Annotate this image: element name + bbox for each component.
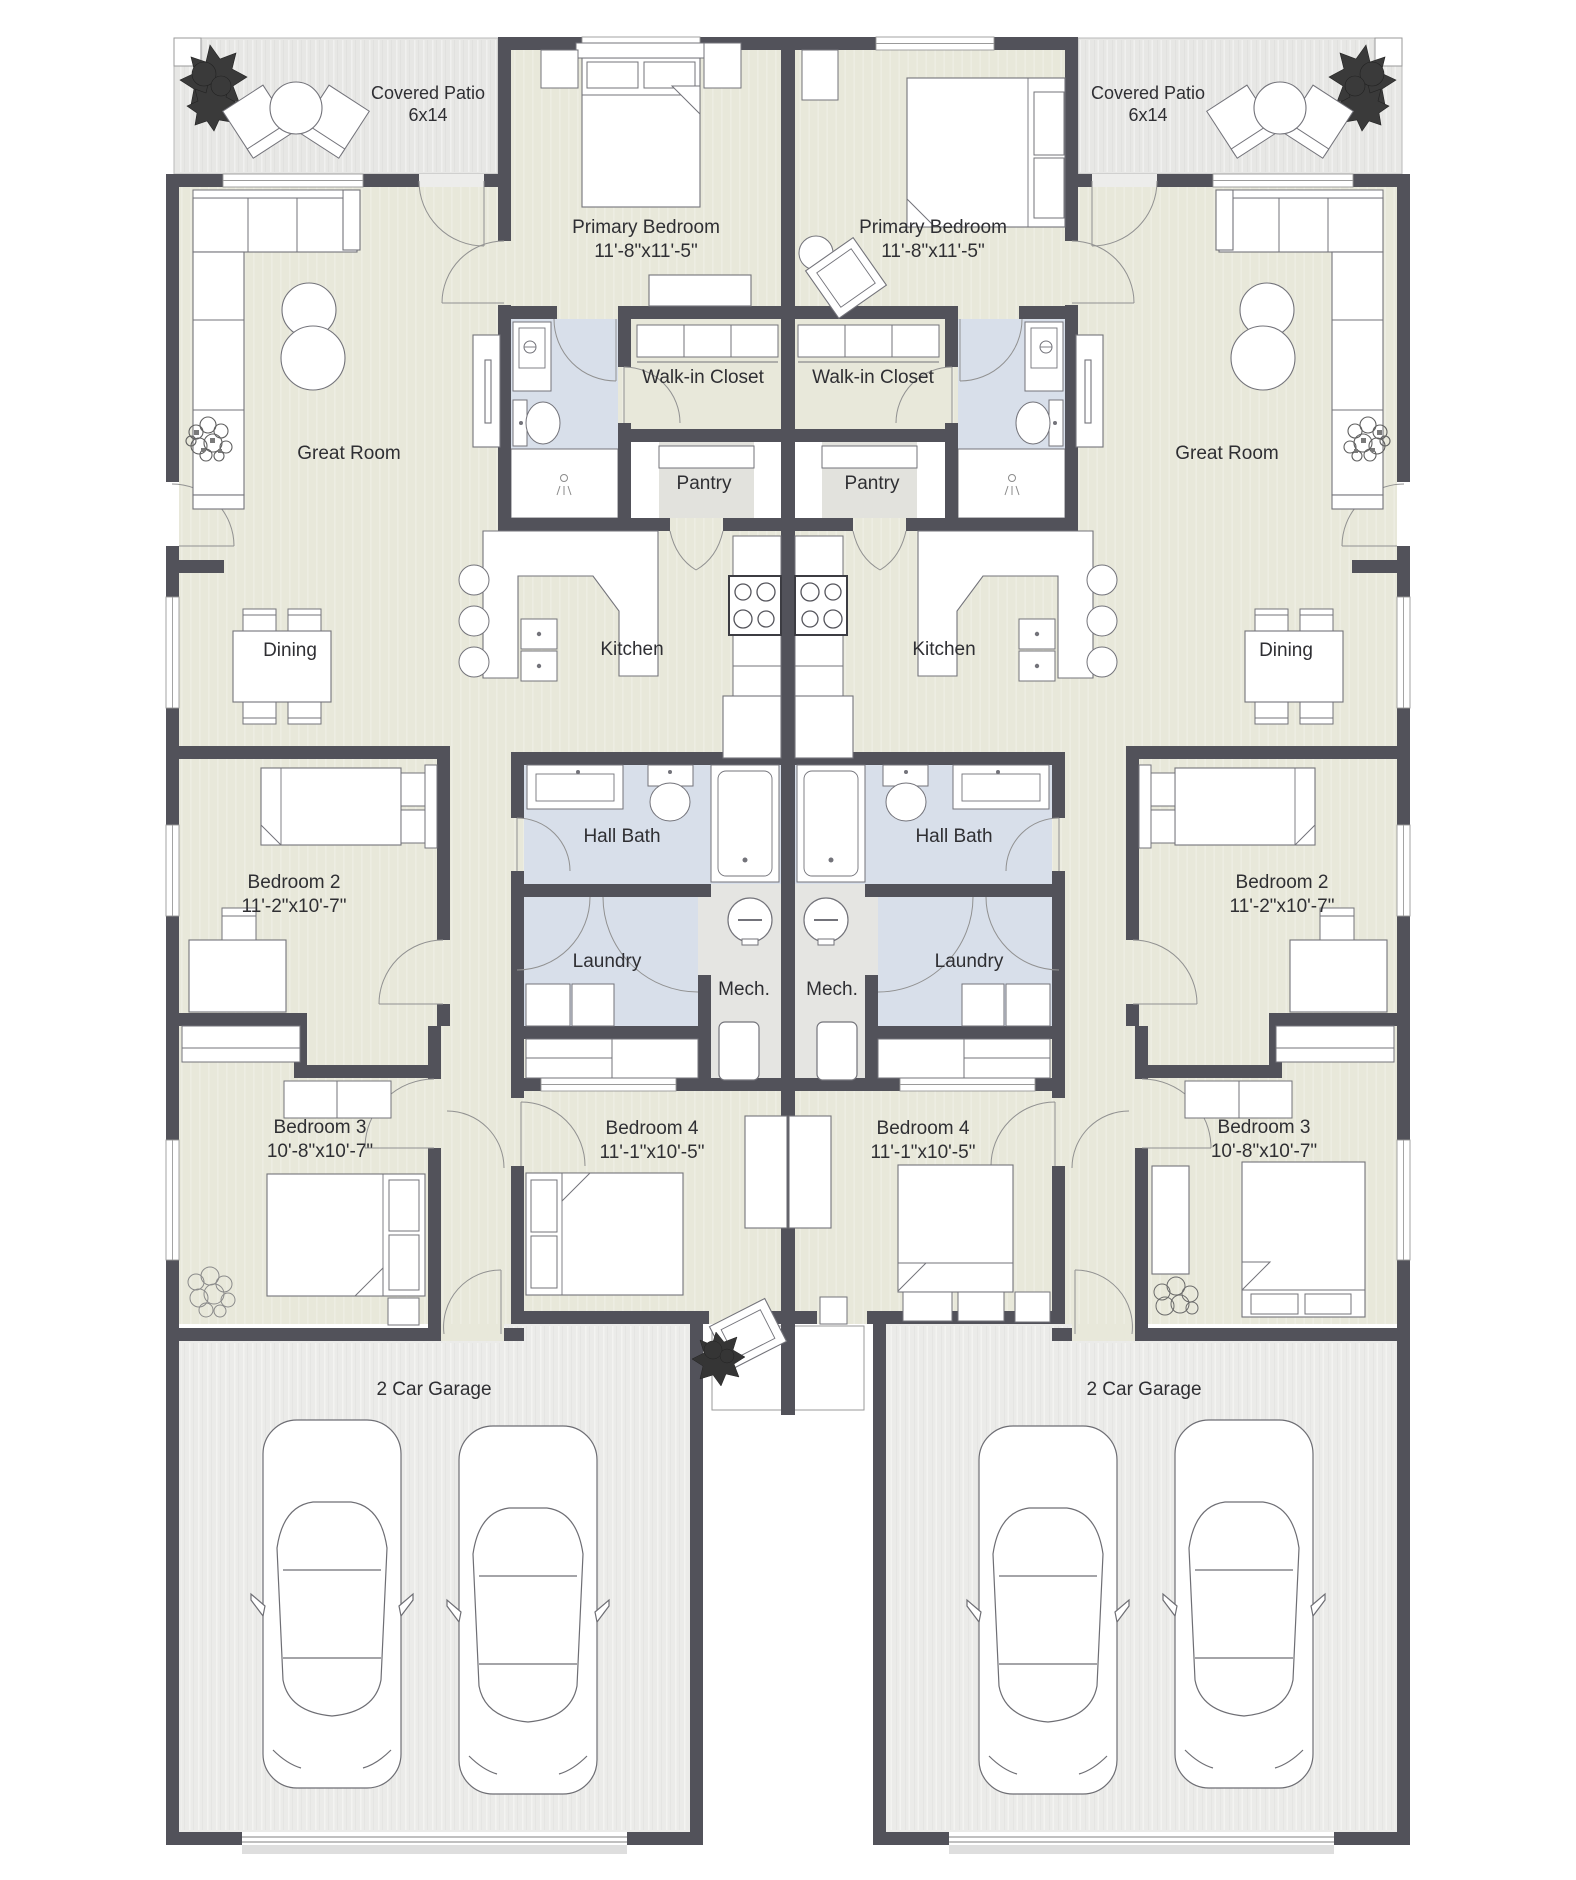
svg-text:Mech.: Mech. xyxy=(718,979,770,1000)
svg-text:Bedroom 4: Bedroom 4 xyxy=(606,1118,699,1139)
svg-text:Primary Bedroom: Primary Bedroom xyxy=(859,217,1007,238)
svg-text:10'-8"x10'-7": 10'-8"x10'-7" xyxy=(267,1141,373,1162)
svg-text:Great Room: Great Room xyxy=(297,443,400,464)
svg-text:Great Room: Great Room xyxy=(1175,443,1278,464)
svg-text:11'-2"x10'-7": 11'-2"x10'-7" xyxy=(1230,896,1335,917)
svg-text:Walk-in Closet: Walk-in Closet xyxy=(642,367,764,388)
svg-text:Bedroom 4: Bedroom 4 xyxy=(877,1118,970,1139)
svg-text:6x14: 6x14 xyxy=(1128,105,1167,125)
svg-text:Hall Bath: Hall Bath xyxy=(583,826,660,847)
svg-text:Dining: Dining xyxy=(1259,640,1313,661)
svg-text:Pantry: Pantry xyxy=(845,473,900,494)
svg-text:Laundry: Laundry xyxy=(935,951,1004,972)
svg-text:Hall Bath: Hall Bath xyxy=(915,826,992,847)
svg-text:Bedroom 3: Bedroom 3 xyxy=(274,1117,367,1138)
svg-text:Mech.: Mech. xyxy=(806,979,858,1000)
svg-text:Laundry: Laundry xyxy=(573,951,642,972)
svg-text:11'-8"x11'-5": 11'-8"x11'-5" xyxy=(594,241,697,262)
svg-text:Covered Patio: Covered Patio xyxy=(1091,83,1205,103)
svg-text:Bedroom 3: Bedroom 3 xyxy=(1218,1117,1311,1138)
svg-text:2 Car Garage: 2 Car Garage xyxy=(1086,1379,1201,1400)
svg-text:2 Car Garage: 2 Car Garage xyxy=(376,1379,491,1400)
svg-text:Kitchen: Kitchen xyxy=(600,639,663,660)
svg-text:Covered Patio: Covered Patio xyxy=(371,83,485,103)
svg-text:11'-8"x11'-5": 11'-8"x11'-5" xyxy=(881,241,984,262)
svg-text:11'-2"x10'-7": 11'-2"x10'-7" xyxy=(242,896,347,917)
svg-text:11'-1"x10'-5": 11'-1"x10'-5" xyxy=(871,1142,976,1163)
svg-text:6x14: 6x14 xyxy=(408,105,447,125)
svg-text:Pantry: Pantry xyxy=(677,473,732,494)
svg-text:Dining: Dining xyxy=(263,640,317,661)
svg-text:Bedroom 2: Bedroom 2 xyxy=(248,872,341,893)
svg-text:Walk-in Closet: Walk-in Closet xyxy=(812,367,934,388)
svg-text:Bedroom 2: Bedroom 2 xyxy=(1236,872,1329,893)
svg-text:11'-1"x10'-5": 11'-1"x10'-5" xyxy=(600,1142,705,1163)
svg-text:10'-8"x10'-7": 10'-8"x10'-7" xyxy=(1211,1141,1317,1162)
svg-text:Kitchen: Kitchen xyxy=(912,639,975,660)
svg-text:Primary Bedroom: Primary Bedroom xyxy=(572,217,720,238)
